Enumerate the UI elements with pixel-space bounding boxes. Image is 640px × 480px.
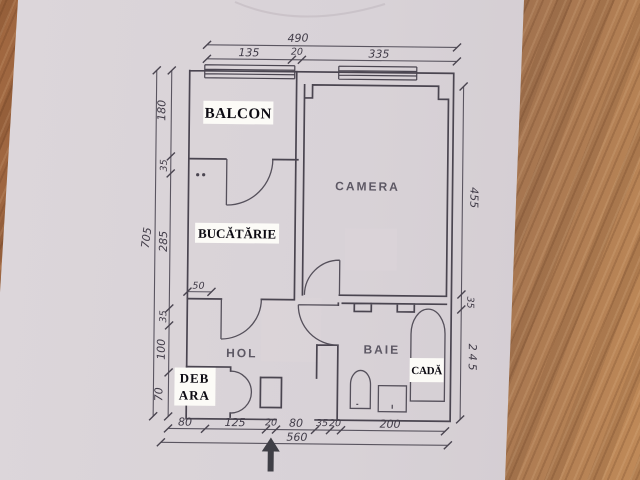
blur-patch [261,297,322,362]
dim-label: 125 [225,416,246,429]
dim-label: 70 [152,387,165,401]
debara-double-door-arcs [230,371,251,413]
baie-label: BAIE [363,342,400,356]
kitchen-door-arc [221,299,261,339]
debara-label-line2: ARA [179,388,210,403]
bathtub-outline [410,309,445,401]
dim-label: 80 [289,417,303,430]
dim-label: 20 [265,417,277,428]
dim-label: 335 [368,47,389,60]
kitchen-vent-dot [202,173,205,176]
debara-label-line1: DEB [180,371,210,386]
dim-label: 35 [158,310,169,322]
dim-label: 245 [466,344,479,374]
cada-label: CADĂ [411,365,442,377]
dim-label: 35 [159,159,170,171]
blur-patch [345,228,397,271]
dim-label: 490 [287,32,308,46]
sink-outline [378,386,406,412]
toilet-outline [350,370,370,408]
floor-plan-drawing: 490 135 20 335 180 35 285 35 100 70 705 … [0,0,640,480]
dim-label: 285 [157,231,170,252]
dim-label: 35 [316,418,328,429]
hol-label: HOL [226,346,257,360]
bucatarie-label: BUCĂTĂRIE [198,226,276,242]
kitchen-vent-dot [196,173,199,176]
dim-label: 35 [464,296,475,308]
dim-label: 455 [467,187,480,208]
dim-label: 180 [155,100,168,121]
camera-door-arc [304,260,339,295]
entrance-arrow-icon [262,437,280,471]
dim-label: 135 [238,46,259,59]
balcon-label: BALCON [205,106,272,123]
dim-label: 80 [178,416,192,429]
dim-label: 100 [155,339,168,360]
dim-label: 20 [291,47,303,58]
paper-curl-shadow [235,2,385,17]
balcony-door-arc [226,159,272,205]
dim-label: 705 [139,226,155,249]
dim-label: 20 [329,418,341,429]
dim-label: 50 [192,281,204,292]
camera-label: CAMERA [335,179,400,194]
dim-label: 560 [286,431,307,444]
dim-label: 200 [380,418,401,431]
